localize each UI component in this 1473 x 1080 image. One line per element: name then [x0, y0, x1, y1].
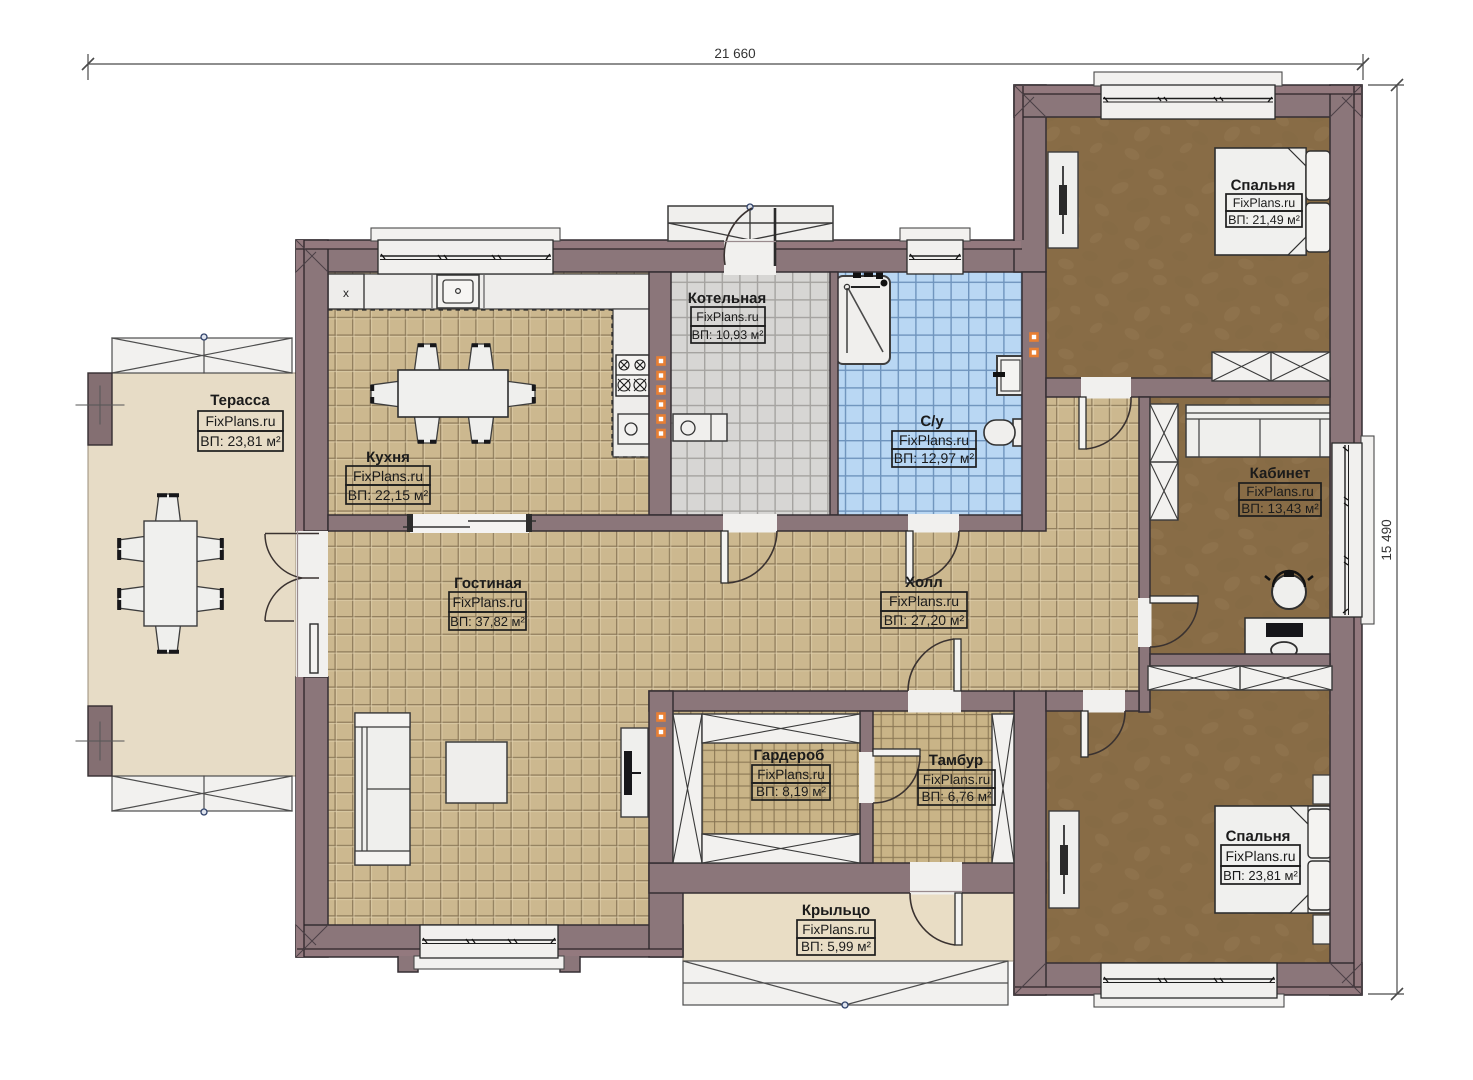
- svg-text:FixPlans.ru: FixPlans.ru: [1225, 848, 1295, 864]
- svg-text:FixPlans.ru: FixPlans.ru: [696, 310, 759, 324]
- svg-text:Спальня: Спальня: [1231, 177, 1296, 194]
- svg-text:ВП: 21,49 м²: ВП: 21,49 м²: [1228, 213, 1300, 227]
- svg-text:21 660: 21 660: [714, 46, 755, 61]
- svg-text:FixPlans.ru: FixPlans.ru: [353, 468, 423, 484]
- svg-text:ВП: 12,97 м²: ВП: 12,97 м²: [894, 450, 975, 466]
- svg-text:ВП: 27,20 м²: ВП: 27,20 м²: [884, 612, 965, 628]
- svg-text:ВП: 13,43 м²: ВП: 13,43 м²: [1241, 501, 1319, 516]
- svg-text:ВП: 37,82 м²: ВП: 37,82 м²: [450, 614, 525, 629]
- svg-text:Кухня: Кухня: [366, 449, 410, 466]
- svg-text:Холл: Холл: [905, 574, 943, 591]
- svg-text:Спальня: Спальня: [1226, 828, 1291, 845]
- svg-text:FixPlans.ru: FixPlans.ru: [1233, 196, 1296, 210]
- svg-text:ВП: 6,76 м²: ВП: 6,76 м²: [921, 789, 992, 804]
- svg-text:FixPlans.ru: FixPlans.ru: [757, 767, 825, 782]
- svg-text:Гостиная: Гостиная: [454, 575, 522, 592]
- svg-text:x: x: [343, 286, 349, 300]
- svg-text:ВП: 23,81 м²: ВП: 23,81 м²: [1223, 868, 1298, 883]
- svg-text:С/у: С/у: [920, 413, 944, 430]
- svg-text:ВП: 22,15 м²: ВП: 22,15 м²: [348, 487, 429, 503]
- svg-text:FixPlans.ru: FixPlans.ru: [923, 772, 991, 787]
- svg-text:ВП: 23,81 м²: ВП: 23,81 м²: [200, 433, 281, 449]
- svg-text:Терасса: Терасса: [210, 392, 270, 409]
- svg-text:FixPlans.ru: FixPlans.ru: [899, 432, 969, 448]
- svg-text:ВП: 10,93 м²: ВП: 10,93 м²: [692, 328, 764, 342]
- svg-text:Гардероб: Гардероб: [754, 747, 825, 764]
- svg-text:Котельная: Котельная: [688, 290, 767, 307]
- svg-text:FixPlans.ru: FixPlans.ru: [205, 413, 275, 429]
- svg-text:15 490: 15 490: [1379, 519, 1394, 560]
- svg-text:ВП: 8,19 м²: ВП: 8,19 м²: [756, 784, 827, 799]
- svg-text:Тамбур: Тамбур: [929, 752, 983, 769]
- svg-text:FixPlans.ru: FixPlans.ru: [1246, 484, 1314, 499]
- svg-text:FixPlans.ru: FixPlans.ru: [889, 593, 959, 609]
- svg-text:ВП: 5,99 м²: ВП: 5,99 м²: [801, 939, 872, 954]
- svg-text:FixPlans.ru: FixPlans.ru: [452, 594, 522, 610]
- svg-text:Кабинет: Кабинет: [1250, 465, 1311, 482]
- svg-text:Крыльцо: Крыльцо: [802, 902, 870, 919]
- svg-text:FixPlans.ru: FixPlans.ru: [802, 922, 870, 937]
